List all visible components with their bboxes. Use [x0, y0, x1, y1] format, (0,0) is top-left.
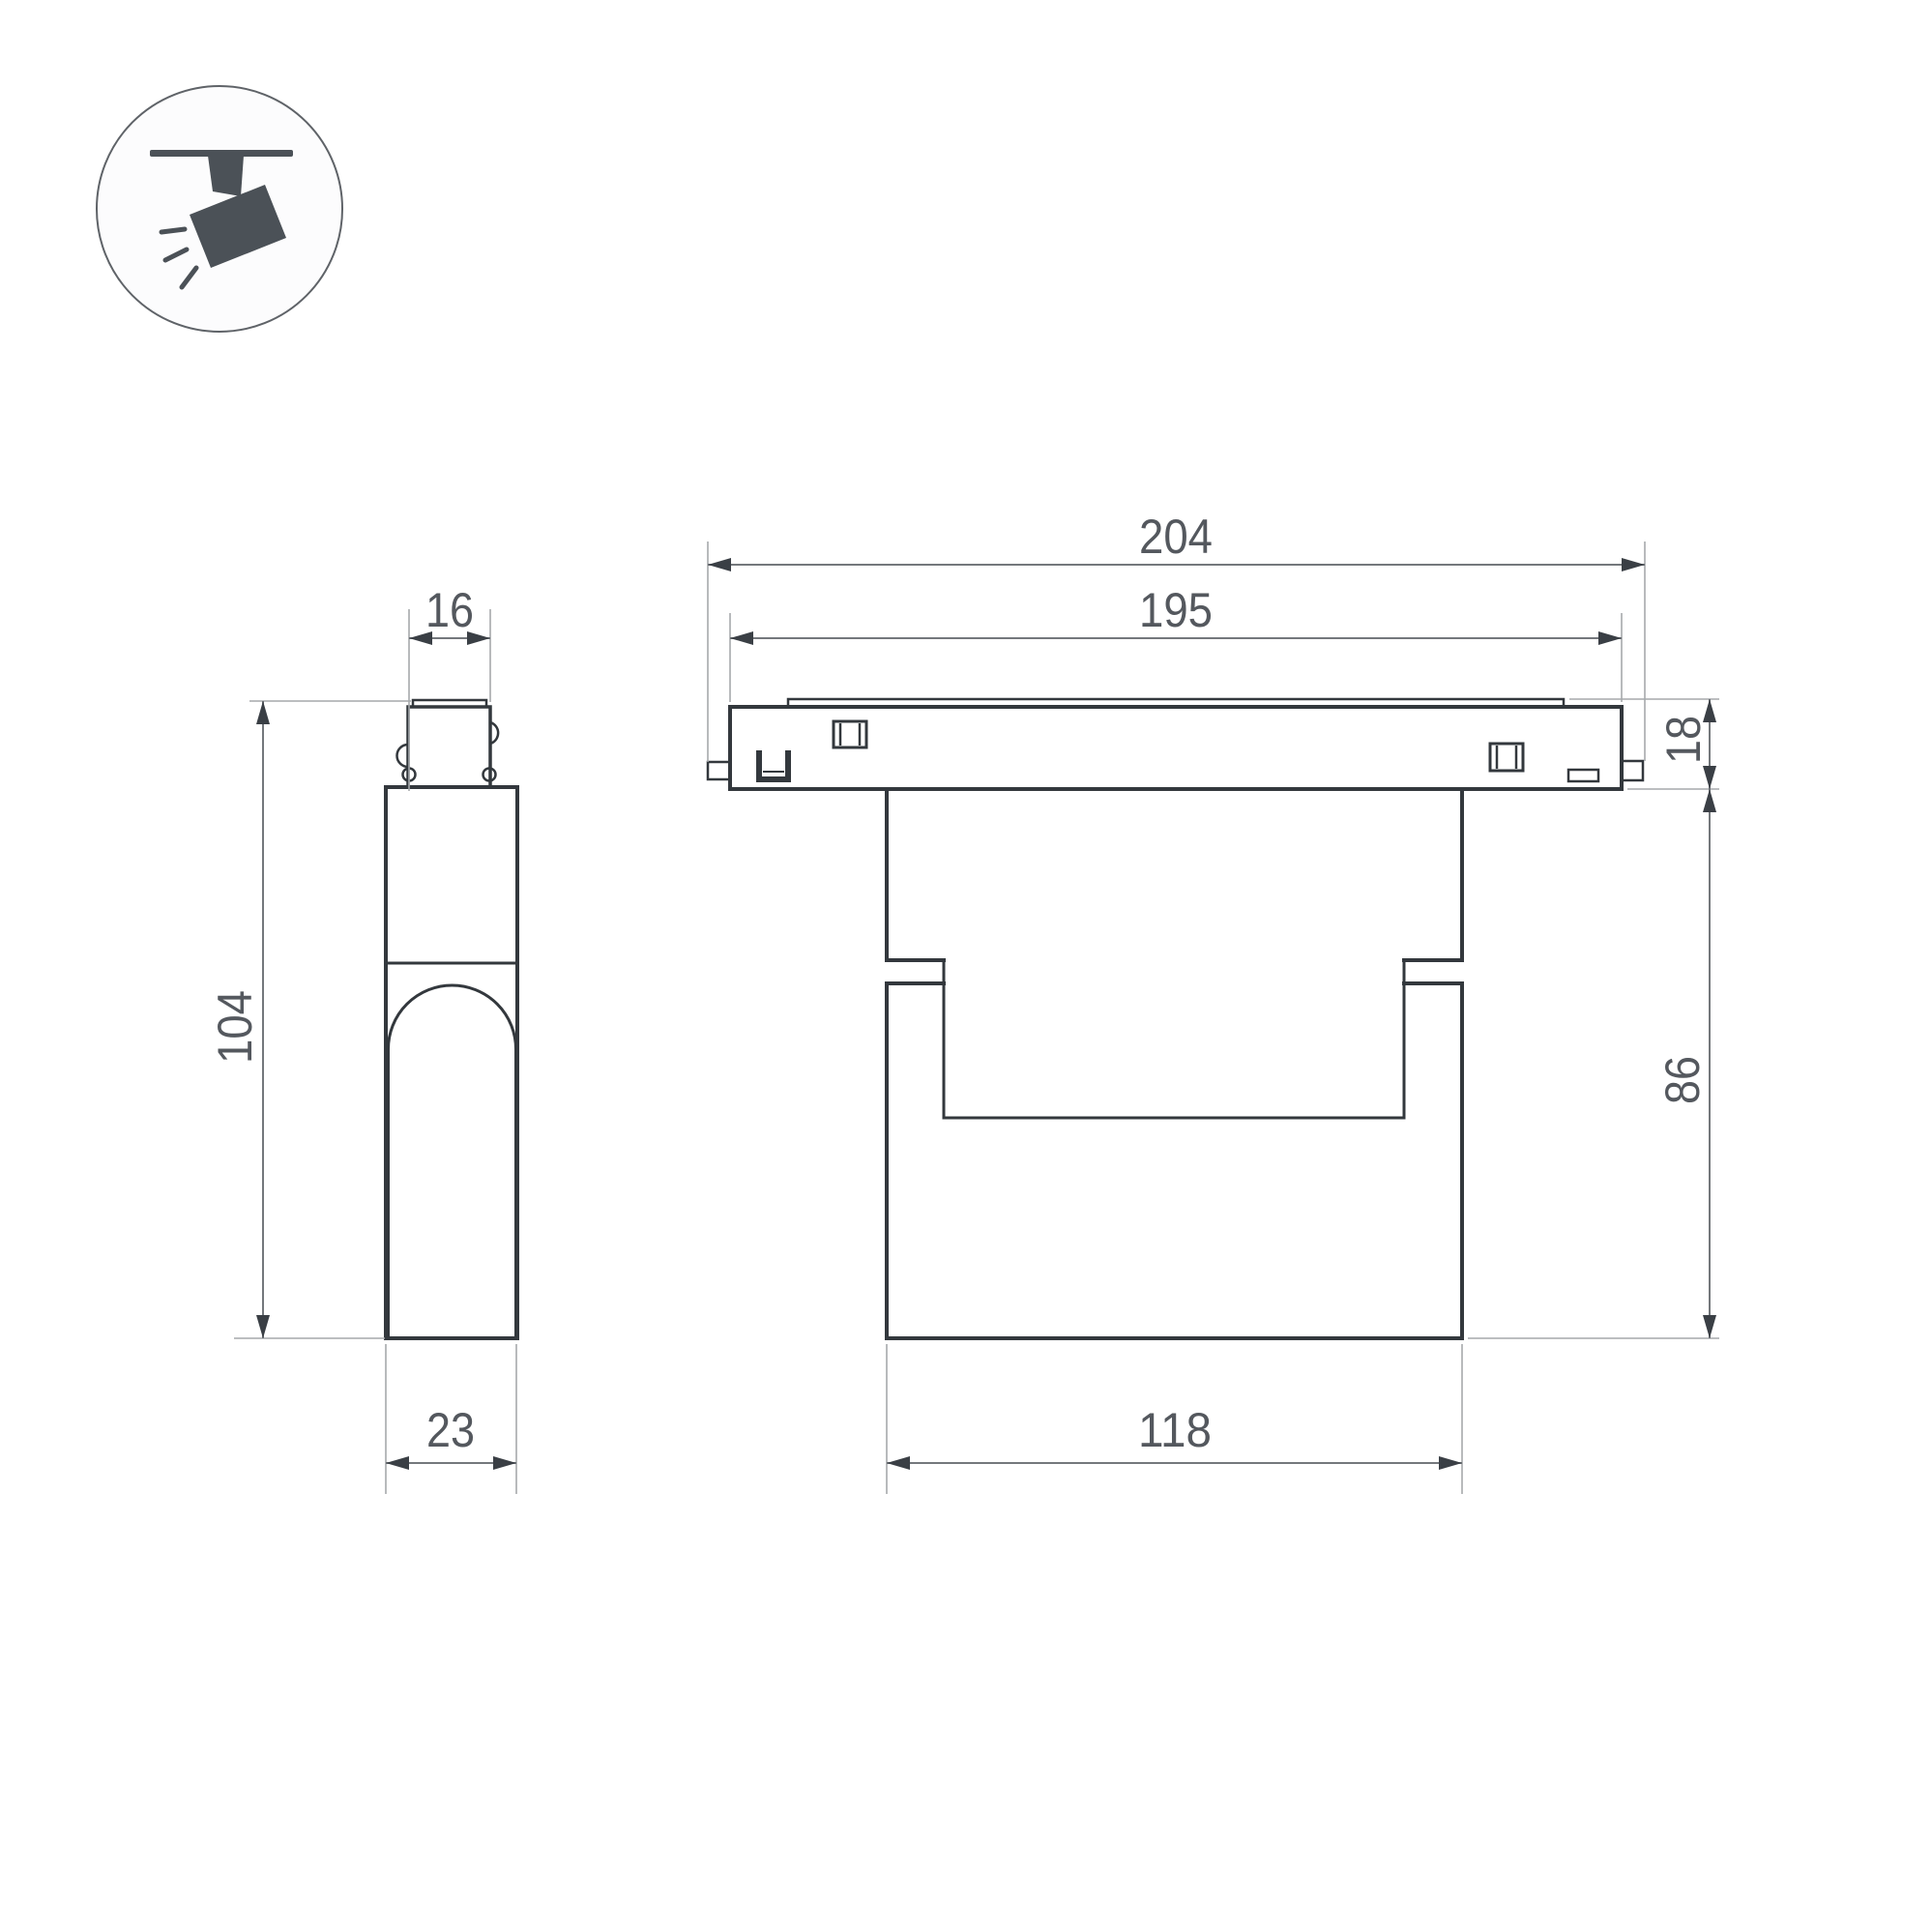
dim-label-204: 204: [1139, 510, 1213, 564]
dim-label-18: 18: [1656, 716, 1711, 764]
side-arch-detail: [389, 985, 516, 1338]
dim-label-16: 16: [425, 583, 474, 637]
dim-label-195: 195: [1139, 583, 1213, 637]
front-right-tab: [1622, 761, 1643, 780]
dim-side-depth: 23: [386, 1344, 516, 1494]
front-u-clip: [759, 750, 788, 779]
dim-label-104: 104: [208, 990, 262, 1064]
technical-drawing: 16 104 23: [0, 0, 1932, 1932]
side-view: 16 104 23: [208, 583, 517, 1494]
dim-body-width: 118: [887, 1344, 1462, 1494]
front-right-socket: [1490, 744, 1523, 771]
track-spotlight-icon: [97, 86, 342, 332]
dim-label-118: 118: [1138, 1403, 1212, 1457]
icon-stem: [208, 156, 244, 196]
drawing-canvas: 16 104 23: [0, 0, 1932, 1932]
side-connector: [408, 707, 490, 787]
front-body-outline: [887, 789, 1462, 1338]
front-end-slot: [1568, 770, 1598, 781]
front-view: 204 195 18 86: [708, 510, 1719, 1494]
dim-label-23: 23: [426, 1403, 475, 1457]
dim-side-top-width: 16: [409, 583, 490, 791]
dim-track-length: 195: [730, 583, 1622, 702]
front-body-inner-panel: [944, 960, 1404, 1118]
dim-body-height: 86: [1468, 789, 1719, 1338]
front-left-tab: [708, 762, 730, 779]
side-body: [386, 787, 517, 1338]
dim-label-86: 86: [1655, 1056, 1710, 1104]
dim-side-height: 104: [208, 701, 411, 1338]
front-top-plate: [788, 699, 1564, 707]
icon-track-bar: [150, 150, 293, 157]
front-left-socket: [834, 721, 866, 747]
